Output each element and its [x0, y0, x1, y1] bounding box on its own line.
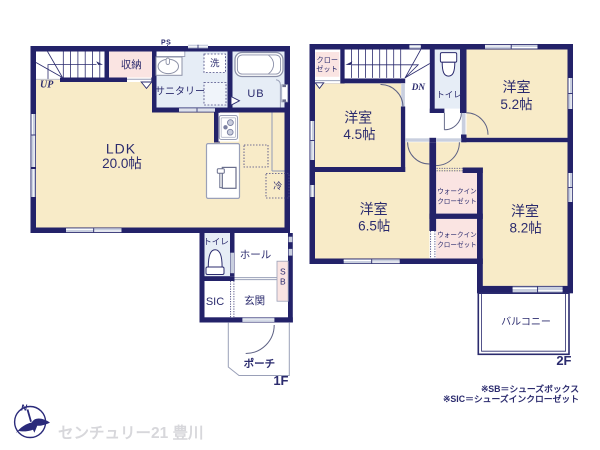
svg-text:PS: PS — [161, 40, 171, 47]
svg-text:サニタリー: サニタリー — [155, 86, 205, 98]
svg-text:UP: UP — [40, 80, 54, 91]
svg-text:20.0帖: 20.0帖 — [102, 156, 142, 171]
svg-text:6.5帖: 6.5帖 — [358, 219, 390, 234]
svg-text:センチュリー21 豊川: センチュリー21 豊川 — [58, 423, 204, 442]
svg-text:洋室: 洋室 — [511, 203, 539, 219]
svg-text:ポーチ: ポーチ — [244, 357, 276, 370]
svg-text:洋室: 洋室 — [503, 79, 531, 95]
svg-text:収納: 収納 — [121, 58, 142, 71]
svg-text:SIC: SIC — [206, 296, 224, 308]
svg-text:バルコニー: バルコニー — [501, 316, 551, 328]
svg-text:B: B — [280, 277, 286, 287]
svg-text:DN: DN — [411, 82, 426, 92]
svg-text:2F: 2F — [556, 353, 571, 368]
svg-text:玄関: 玄関 — [244, 294, 265, 307]
svg-text:ウォークイン: ウォークイン — [437, 188, 477, 196]
svg-text:トイレ: トイレ — [203, 236, 229, 246]
svg-text:クローゼット: クローゼット — [437, 197, 477, 206]
svg-text:8.2帖: 8.2帖 — [510, 221, 542, 236]
svg-text:4.5帖: 4.5帖 — [343, 127, 375, 142]
svg-text:UB: UB — [247, 88, 264, 100]
svg-text:1F: 1F — [273, 373, 288, 388]
svg-text:クロー: クロー — [317, 56, 339, 65]
svg-text:冷: 冷 — [273, 180, 282, 191]
svg-text:クローゼット: クローゼット — [437, 240, 477, 249]
svg-text:5.2帖: 5.2帖 — [500, 97, 532, 112]
svg-text:洋室: 洋室 — [360, 201, 388, 217]
svg-text:洋室: 洋室 — [344, 110, 372, 126]
svg-text:ホール: ホール — [240, 249, 272, 261]
svg-text:S: S — [280, 267, 286, 277]
svg-text:ウォークイン: ウォークイン — [437, 231, 477, 239]
svg-text:LDK: LDK — [106, 141, 136, 157]
svg-text:※SB＝シューズボックス: ※SB＝シューズボックス — [481, 383, 579, 394]
svg-text:N: N — [21, 403, 28, 413]
svg-text:ゼット: ゼット — [316, 65, 338, 74]
svg-text:※SIC＝シューズインクローゼット: ※SIC＝シューズインクローゼット — [443, 393, 579, 404]
svg-text:トイレ: トイレ — [436, 89, 462, 99]
svg-text:洗: 洗 — [210, 58, 220, 70]
